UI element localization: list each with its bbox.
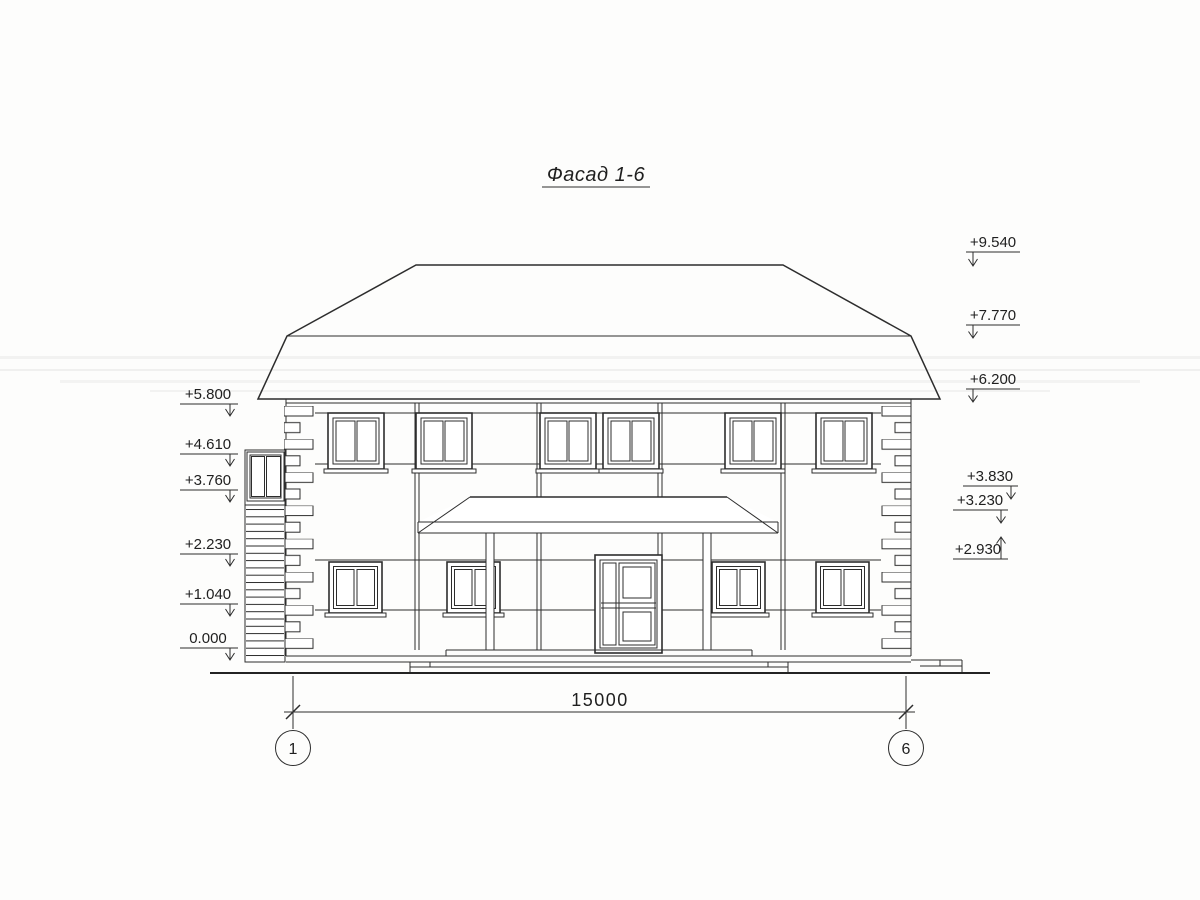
facade-drawing: Фасад 1-6	[0, 0, 1200, 900]
elevation-mark-label: +7.770	[970, 307, 1016, 324]
elevation-mark-label: +4.610	[185, 436, 231, 453]
elevation-mark-label: +3.230	[957, 492, 1003, 509]
window-upper-5	[725, 413, 781, 469]
canopy-column-left	[486, 533, 494, 650]
elevation-mark: +4.610	[180, 436, 238, 466]
window-upper-6	[816, 413, 872, 469]
canopy-column-right	[703, 533, 711, 650]
dimension-value: 15000	[571, 690, 629, 710]
elevation-mark-label: +1.040	[185, 586, 231, 603]
elevation-mark-label: +2.230	[185, 536, 231, 553]
elevation-mark-label: +3.760	[185, 472, 231, 489]
axis-circle-6: 6	[889, 731, 924, 766]
axis-label-6: 6	[902, 741, 911, 758]
quoins-right	[881, 406, 912, 652]
elevation-mark: +2.230	[180, 536, 238, 566]
elevation-mark: 0.000	[180, 630, 238, 660]
window-upper-4	[603, 413, 659, 469]
elevation-mark-label: +5.800	[185, 386, 231, 403]
elevation-marks-right-upper: +9.540 +7.770 +6.200	[966, 234, 1020, 402]
annex-louver-stripes	[246, 509, 284, 657]
axis-label-1: 1	[289, 741, 298, 758]
side-annex-tower	[245, 450, 285, 662]
elevation-marks-right-lower: +3.830 +3.230 +2.930	[953, 468, 1018, 559]
elevation-mark: +3.760	[180, 472, 238, 502]
elevation-mark: +3.230	[953, 492, 1008, 523]
dimension-and-axes: 15000 1 6	[276, 676, 924, 766]
window-lower-4	[816, 562, 869, 613]
elevation-marks-left: +5.800 +4.610 +3.760 +2.230 +1.040 0.000	[180, 386, 238, 660]
elevation-mark: +5.800	[180, 386, 238, 416]
elevation-mark: +6.200	[966, 371, 1020, 402]
scanned-drawing-sheet: Фасад 1-6	[0, 0, 1200, 900]
axis-circle-1: 1	[276, 731, 311, 766]
elevation-mark-label: 0.000	[189, 630, 227, 647]
elevation-mark-label: +9.540	[970, 234, 1016, 251]
window-lower-3	[712, 562, 765, 613]
elevation-mark: +1.040	[180, 586, 238, 616]
band-upper-floor	[315, 413, 881, 464]
quoins-left	[284, 406, 315, 652]
page-title: Фасад 1-6	[547, 164, 646, 186]
window-sills-upper	[324, 469, 876, 473]
right-side-steps	[911, 660, 962, 673]
window-upper-1	[328, 413, 384, 469]
elevation-mark-label: +2.930	[955, 541, 1001, 558]
elevation-mark-label: +6.200	[970, 371, 1016, 388]
window-upper-3	[540, 413, 596, 469]
elevation-mark-label: +3.830	[967, 468, 1013, 485]
roof	[258, 265, 940, 399]
scan-streaks	[0, 356, 1200, 392]
elevation-mark: +7.770	[966, 307, 1020, 338]
window-upper-2	[416, 413, 472, 469]
entrance-canopy	[418, 497, 778, 533]
drawing-title: Фасад 1-6	[542, 164, 650, 187]
elevation-mark: +9.540	[966, 234, 1020, 266]
entrance-door	[595, 555, 662, 653]
window-lower-1	[329, 562, 382, 613]
elevation-mark: +2.930	[953, 537, 1008, 559]
